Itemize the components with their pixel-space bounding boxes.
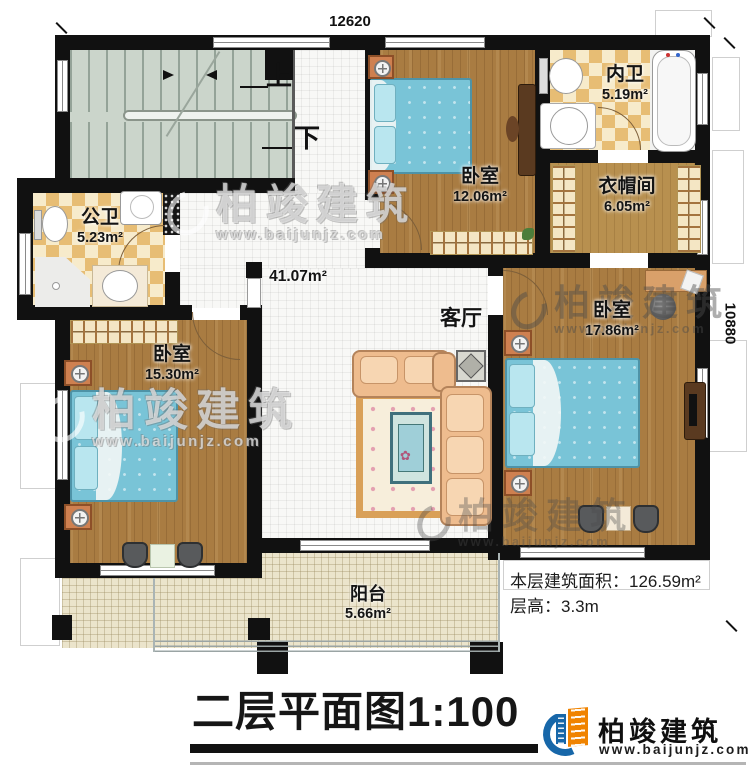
desk-monitor	[689, 394, 697, 426]
wall	[17, 305, 192, 320]
nightstand-knob	[374, 175, 391, 192]
room-label-closet: 衣帽间 6.05m²	[587, 176, 667, 216]
room-label-bedroom-left: 卧室 15.30m²	[132, 344, 212, 384]
plan-title: 二层平面图1:100	[192, 678, 519, 739]
sofa-cushion	[446, 436, 484, 474]
room-label-public-bath: 公卫 5.23m²	[60, 207, 140, 247]
window	[19, 233, 31, 295]
nightstand-knob	[511, 335, 529, 353]
pillow	[374, 84, 396, 122]
toilet-icon	[549, 58, 583, 94]
chair	[122, 542, 148, 568]
window	[520, 547, 645, 558]
wall	[55, 35, 710, 50]
window	[697, 73, 708, 125]
floor-area-note: 本层建筑面积：126.59m²	[510, 567, 701, 592]
nightstand-knob	[71, 365, 89, 383]
nightstand-knob	[374, 60, 391, 77]
faucet-hot	[666, 53, 670, 57]
desk-chair	[506, 116, 519, 142]
window	[213, 37, 330, 48]
nightstand	[368, 170, 394, 194]
sofa-cushion	[360, 356, 398, 384]
wall	[365, 253, 590, 268]
stair-up-leader	[240, 86, 268, 88]
sofa-right	[440, 386, 492, 526]
balcony-edge	[153, 578, 155, 652]
wardrobe-bedroom-left	[70, 320, 178, 344]
stair-arrow	[206, 70, 217, 80]
nightstand	[504, 330, 532, 356]
room-label-inner-bath: 内卫 5.19m²	[585, 64, 665, 104]
window	[57, 390, 68, 480]
floor-plan-canvas: ✿ 柏竣建筑 www.baijunjz.com 柏竣建筑 www.baijunj…	[0, 0, 750, 773]
plant-icon	[522, 228, 534, 240]
room-label-bedroom-right: 卧室 17.86m²	[572, 300, 652, 340]
chair	[578, 505, 604, 533]
duct-shaft	[163, 193, 180, 235]
pillow	[374, 126, 396, 164]
sofa-cushion	[446, 394, 484, 432]
room-label-bedroom-top: 卧室 12.06m²	[440, 166, 520, 206]
title-underline	[190, 744, 538, 753]
sink-icon	[102, 270, 138, 302]
wall	[535, 150, 598, 163]
side-table	[606, 506, 631, 531]
sofa-cushion	[446, 478, 484, 516]
brand-url: www.baijunjz.com	[599, 742, 750, 757]
title-underline-thin	[190, 762, 746, 765]
flower-deco: ✿	[400, 448, 411, 464]
stair-treads-upper	[70, 50, 293, 112]
toilet-tank	[34, 210, 42, 240]
stair-up-label: 上	[266, 56, 292, 93]
closet-rack-left	[552, 165, 576, 253]
wall	[488, 268, 503, 276]
chair	[177, 542, 203, 568]
window	[57, 60, 68, 112]
chair	[633, 505, 659, 533]
nightstand	[64, 504, 92, 530]
pillow	[509, 412, 535, 456]
dimension-tick	[725, 620, 737, 632]
stair-down-leader	[262, 147, 292, 149]
room-label-living-area: 41.07m²	[258, 268, 338, 287]
balcony-post	[248, 618, 270, 640]
balcony-railing	[155, 640, 500, 652]
sink-icon	[550, 107, 588, 145]
room-label-living-name: 客厅	[434, 306, 488, 331]
nightstand-knob	[71, 509, 89, 527]
exterior-line	[20, 383, 58, 489]
exterior-line	[712, 57, 740, 131]
sliding-door	[300, 540, 430, 551]
balcony-post	[52, 615, 72, 640]
stair-down-label: 下	[294, 118, 320, 155]
nightstand	[368, 55, 394, 79]
dimension-tick	[723, 37, 735, 49]
brand-logo-building-icon	[568, 707, 588, 747]
wardrobe-bedroom-top	[430, 231, 533, 255]
window	[385, 37, 485, 48]
stair-arrow	[163, 70, 174, 80]
brand-logo-tower-icon	[556, 714, 566, 744]
dimension-top: 12620	[320, 13, 380, 30]
floor-height-note: 层高：3.3m	[510, 592, 599, 617]
desk	[518, 84, 536, 176]
shower-drain	[52, 282, 60, 290]
wall	[33, 178, 295, 193]
dimension-tick	[55, 22, 67, 34]
exterior-line	[705, 340, 747, 452]
table-lamp	[650, 294, 676, 320]
nightstand	[64, 360, 92, 386]
exterior-line	[712, 150, 744, 264]
exterior-line	[655, 10, 712, 37]
room-label-balcony: 阳台 5.66m²	[328, 584, 408, 623]
stair-handrail	[123, 110, 297, 121]
faucet-cold	[676, 53, 680, 57]
dimension-right: 10880	[722, 294, 739, 354]
nightstand-knob	[511, 475, 529, 493]
balcony-edge	[498, 553, 500, 652]
pillow	[509, 364, 535, 408]
nightstand	[504, 470, 532, 496]
stair-treads-lower	[70, 122, 293, 178]
closet-rack-right	[677, 165, 701, 253]
toilet-tank	[539, 58, 548, 94]
pillow	[74, 396, 98, 440]
pillow	[74, 446, 98, 490]
side-table	[150, 544, 175, 568]
